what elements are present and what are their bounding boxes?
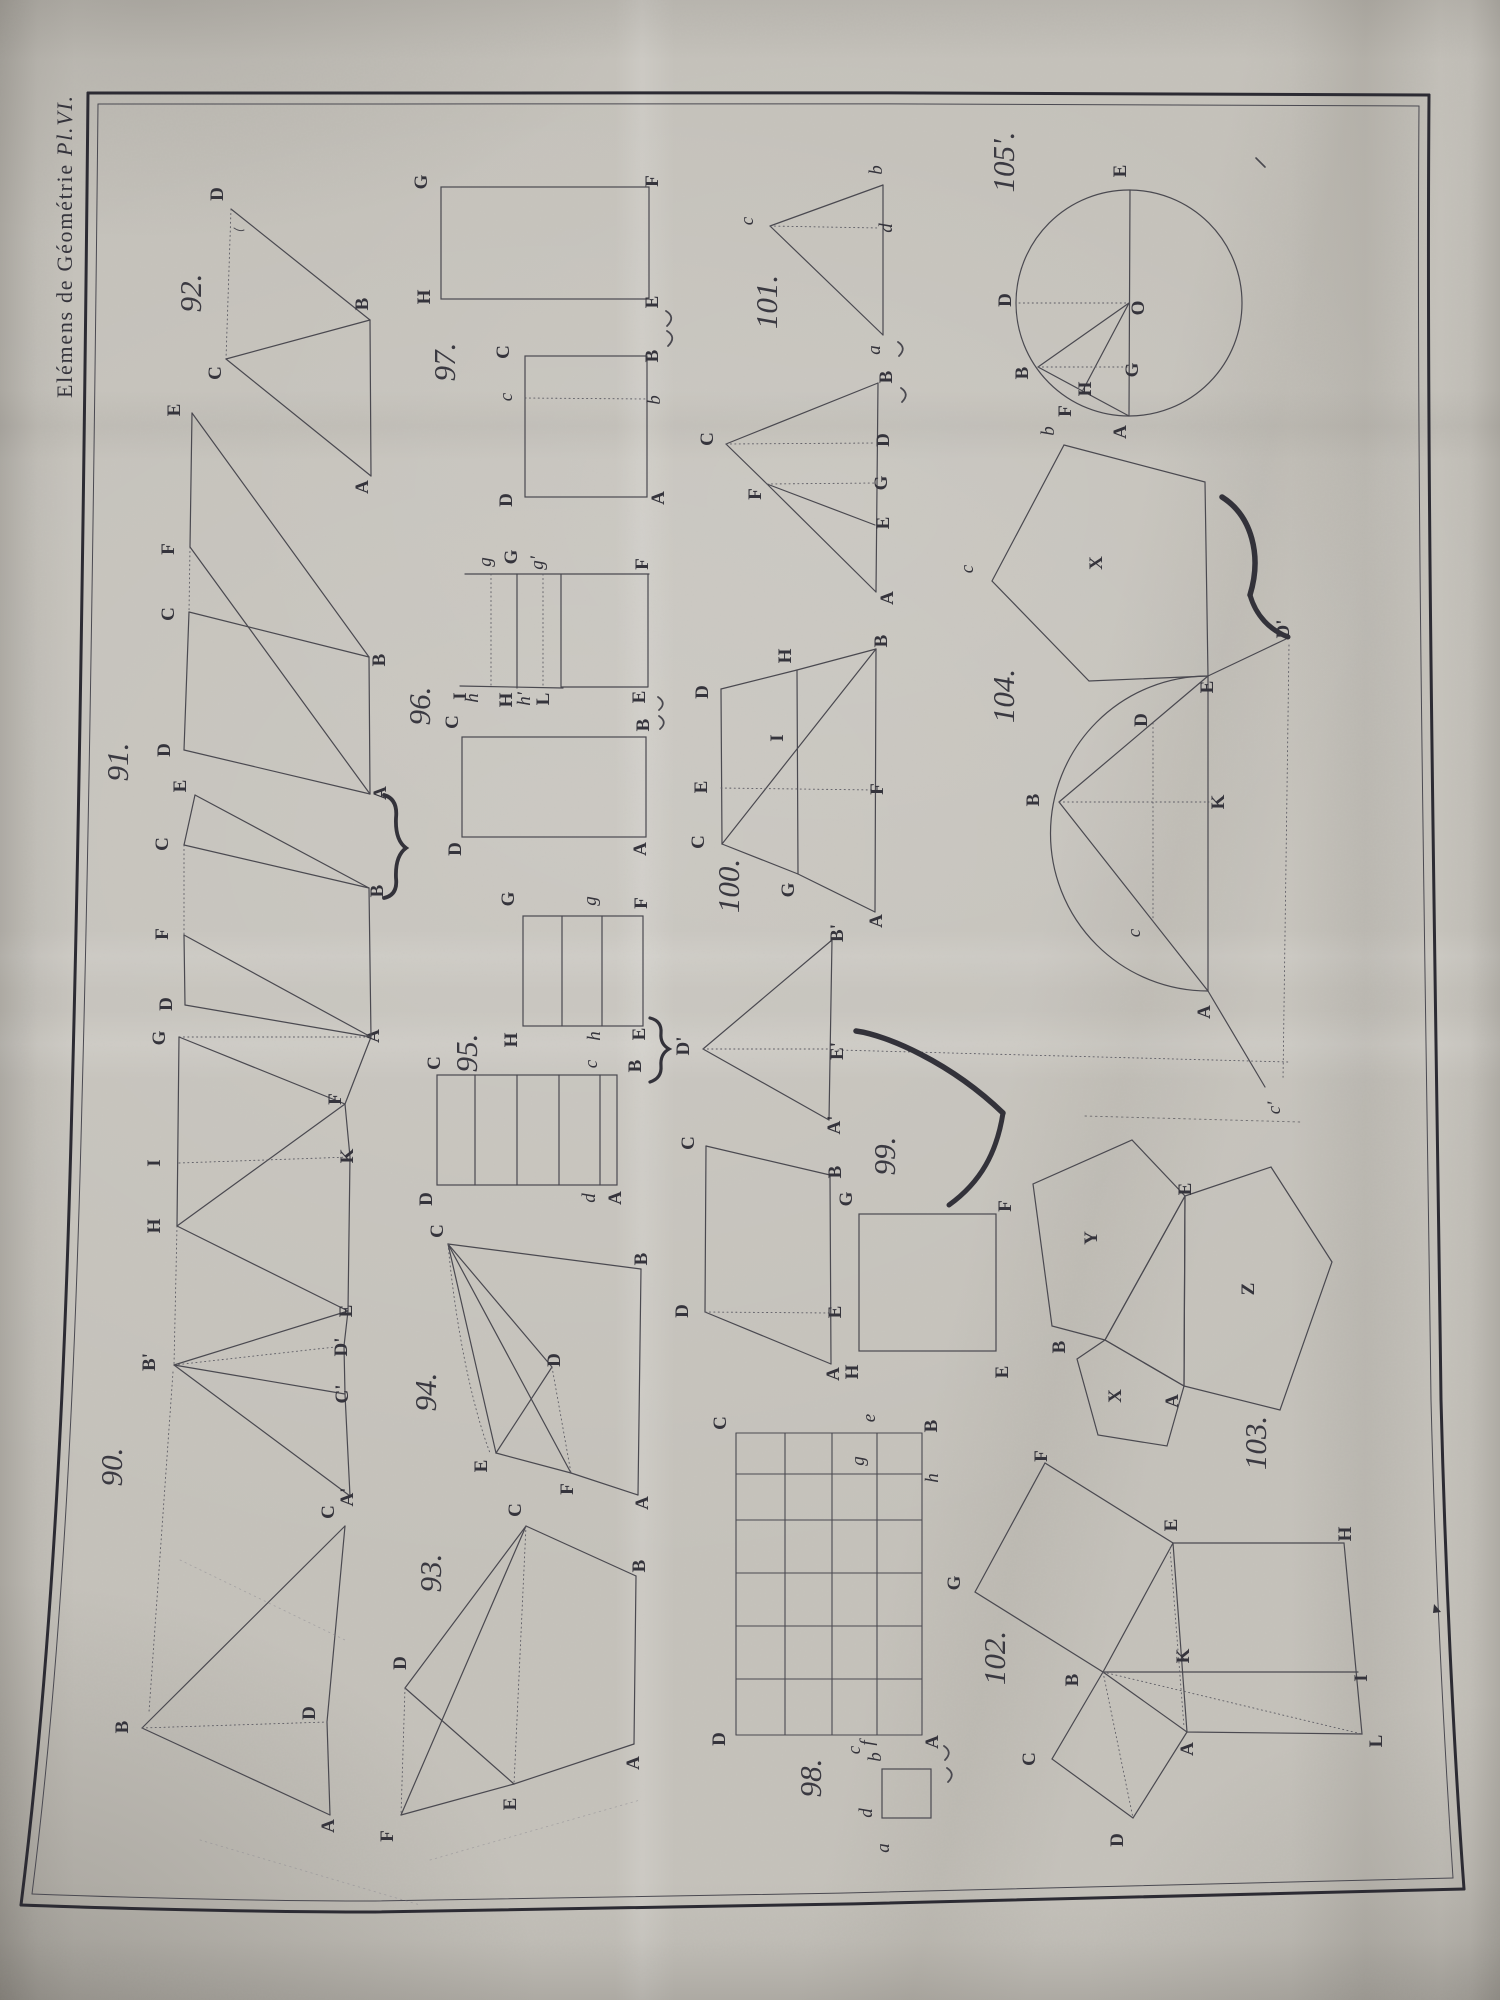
svg-text:I: I [1351,1674,1372,1681]
svg-text:G: G [411,174,432,189]
svg-text:B: B [825,1165,846,1178]
svg-text:A: A [630,842,651,856]
svg-text:F: F [325,1093,346,1105]
svg-text:E: E [691,781,712,794]
svg-text:E: E [164,404,185,417]
svg-text:G: G [501,549,522,564]
svg-text:F: F [158,543,179,555]
svg-text:98.: 98. [793,1759,828,1798]
svg-text:K: K [1208,794,1229,809]
svg-text:G: G [871,475,892,490]
svg-text:B: B [631,1252,652,1265]
svg-text:G: G [498,891,519,906]
svg-text:H: H [775,648,796,663]
svg-text:H: H [144,1218,165,1233]
svg-text:D: D [445,842,466,856]
svg-text:C: C [688,835,709,849]
svg-text:D: D [390,1656,411,1670]
svg-text:h: h [584,1031,605,1041]
svg-text:A: A [352,480,373,494]
svg-text:g: g [475,557,496,567]
svg-text:D: D [692,685,713,699]
svg-text:Z: Z [1238,1283,1259,1296]
svg-text:C: C [710,1416,731,1430]
svg-text:F: F [152,928,173,940]
svg-text:E: E [500,1798,521,1811]
svg-text:92.: 92. [173,274,208,313]
svg-text:D': D' [1273,620,1294,639]
svg-text:B: B [629,1559,650,1572]
svg-text:B: B [1049,1340,1070,1353]
svg-text:X: X [1105,1389,1126,1403]
svg-text:F: F [1031,1450,1052,1462]
svg-text:A: A [623,1756,644,1770]
svg-text:E: E [825,1306,846,1319]
svg-text:F: F [377,1830,398,1842]
svg-text:95.: 95. [449,1034,484,1073]
svg-text:A: A [1110,425,1131,439]
svg-text:B: B [112,1720,133,1733]
svg-text:X: X [1086,556,1107,570]
svg-text:F: F [631,897,652,909]
svg-text:D: D [156,997,177,1011]
svg-text:F: F [867,783,888,795]
svg-text:h: h [922,1473,943,1483]
svg-text:E: E [1110,165,1131,178]
svg-text:B: B [369,653,390,666]
svg-text:F: F [557,1483,578,1495]
svg-text:E: E [170,780,191,793]
svg-text:102.: 102. [977,1631,1012,1685]
svg-text:g: g [848,1456,869,1466]
svg-text:a: a [864,345,885,355]
svg-text:D: D [672,1304,693,1318]
svg-text:O: O [1128,301,1149,316]
svg-text:C: C [697,432,718,446]
svg-text:D: D [873,433,894,447]
svg-text:b: b [866,165,887,175]
svg-text:Elémens de Géométrie Pl.VI.: Elémens de Géométrie Pl.VI. [52,96,77,398]
svg-text:D': D' [331,1338,352,1357]
svg-text:D: D [496,493,517,507]
svg-text:E: E [1197,681,1218,694]
svg-text:103.: 103. [1238,1416,1273,1470]
svg-text:H: H [414,289,435,304]
svg-text:E: E [1175,1183,1196,1196]
svg-text:E: E [873,517,894,530]
svg-text:105'.: 105'. [986,132,1021,193]
svg-text:G: G [1122,362,1143,377]
svg-text:d: d [579,1193,600,1203]
svg-text:D: D [207,187,228,201]
svg-text:b: b [644,395,665,405]
svg-text:C: C [1019,1752,1040,1766]
svg-text:B: B [642,349,663,362]
svg-text:C: C [205,366,226,380]
svg-text:C: C [424,1056,445,1070]
svg-text:K: K [337,1148,358,1163]
svg-text:E: E [471,1460,492,1473]
svg-text:B: B [871,634,892,647]
svg-text:b: b [865,1752,886,1762]
svg-text:I: I [144,1159,165,1166]
svg-text:97.: 97. [427,343,462,382]
svg-text:d: d [876,223,897,233]
svg-text:c: c [496,392,517,401]
svg-text:L: L [1366,1735,1387,1748]
svg-text:A': A' [337,1488,358,1507]
svg-text:H: H [1075,381,1096,396]
svg-text:A': A' [824,1116,845,1135]
svg-text:B: B [625,1059,646,1072]
svg-text:E: E [1161,1519,1182,1532]
svg-text:B: B [633,718,654,731]
svg-text:C: C [427,1224,448,1238]
svg-text:C: C [493,345,514,359]
svg-text:E': E' [827,1042,848,1060]
svg-text:94.: 94. [408,1373,443,1412]
svg-text:h: h [462,693,483,703]
svg-text:C: C [505,1503,526,1517]
svg-text:H: H [501,1032,522,1047]
svg-text:F: F [632,558,653,570]
svg-text:L: L [533,693,554,706]
svg-text:c: c [957,564,978,573]
svg-text:g': g' [527,555,548,570]
svg-text:C: C [152,837,173,851]
svg-text:C': C' [332,1385,353,1404]
svg-text:91.: 91. [100,743,135,782]
svg-text:I: I [767,734,788,741]
svg-text:A: A [370,786,391,800]
svg-text:F: F [995,1200,1016,1212]
svg-text:B: B [1062,1673,1083,1686]
svg-text:C: C [442,715,463,729]
svg-text:F: F [745,488,766,500]
svg-text:D: D [709,1732,730,1746]
svg-text:F: F [1055,405,1076,417]
svg-text:C: C [318,1505,339,1519]
svg-text:101.: 101. [749,275,784,329]
svg-text:D: D [416,1192,437,1206]
svg-text:D': D' [673,1037,694,1056]
svg-text:Y: Y [1081,1231,1102,1245]
svg-text:C: C [158,607,179,621]
svg-text:G: G [778,882,799,897]
svg-text:C: C [678,1136,699,1150]
svg-text:c: c [581,1059,602,1068]
svg-text:c: c [737,216,758,225]
svg-text:A: A [1162,1394,1183,1408]
svg-text:D: D [1107,1833,1128,1847]
svg-text:g: g [580,896,601,906]
svg-text:G: G [944,1575,965,1590]
svg-text:104.: 104. [986,669,1021,723]
svg-text:99.: 99. [867,1137,902,1176]
svg-text:B: B [921,1419,942,1432]
svg-text:D: D [544,1353,565,1367]
svg-text:B: B [1023,793,1044,806]
svg-text:D: D [154,743,175,757]
svg-text:c': c' [1264,1101,1285,1114]
svg-text:F: F [642,175,663,187]
svg-text:B: B [352,297,373,310]
svg-text:A: A [632,1496,653,1510]
svg-text:B: B [876,370,897,383]
svg-text:93.: 93. [413,1554,448,1593]
svg-text:E: E [629,1028,650,1041]
svg-text:A: A [866,914,887,928]
svg-text:B': B' [827,924,848,942]
svg-text:E: E [642,296,663,309]
svg-text:100.: 100. [711,859,746,913]
svg-text:E: E [336,1305,357,1318]
svg-text:D: D [995,293,1016,307]
svg-text:E: E [992,1366,1013,1379]
svg-text:c: c [1124,928,1145,937]
svg-text:B: B [367,884,388,897]
svg-text:A: A [877,591,898,605]
svg-text:A: A [1177,1742,1198,1756]
svg-text:G: G [836,1191,857,1206]
svg-text:A: A [922,1735,943,1749]
svg-text:A: A [1194,1005,1215,1019]
svg-text:H: H [1335,1526,1356,1541]
svg-text:d: d [856,1808,877,1818]
svg-text:b: b [1038,426,1059,436]
svg-text:e: e [859,1414,880,1422]
svg-text:B': B' [139,1353,160,1371]
svg-text:A: A [648,491,669,505]
svg-text:90.: 90. [94,1448,129,1487]
svg-text:96.: 96. [402,687,437,726]
svg-text:E: E [629,691,650,704]
svg-text:K: K [1173,1648,1194,1663]
svg-text:A: A [823,1367,844,1381]
svg-text:H: H [842,1364,863,1379]
svg-text:D: D [299,1706,320,1720]
svg-text:B: B [1012,366,1033,379]
svg-text:A: A [318,1819,339,1833]
svg-text:G: G [149,1030,170,1045]
svg-text:a: a [873,1843,894,1853]
svg-text:h': h' [514,691,535,706]
svg-text:A: A [605,1191,626,1205]
svg-text:D: D [1131,713,1152,727]
